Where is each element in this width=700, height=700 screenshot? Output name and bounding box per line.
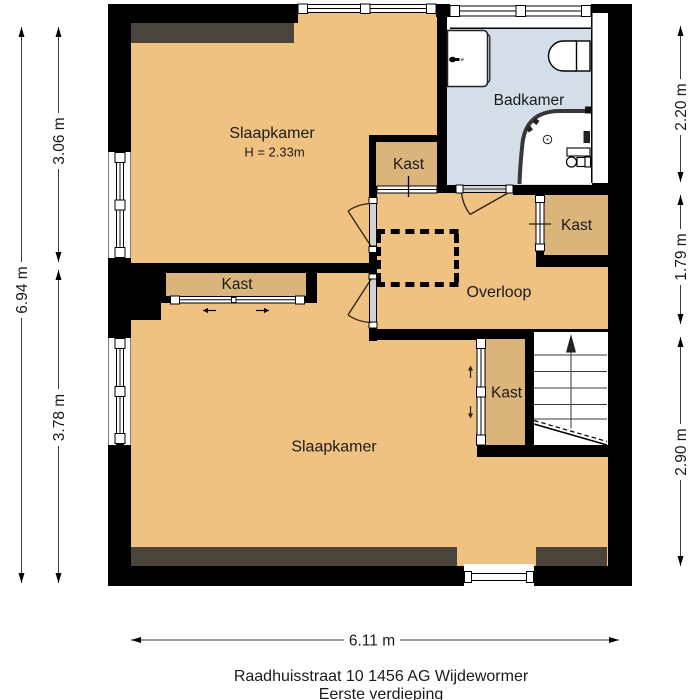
svg-text:6.94 m: 6.94 m xyxy=(14,266,31,313)
svg-text:Kast: Kast xyxy=(393,156,425,173)
svg-text:6.11 m: 6.11 m xyxy=(349,633,395,650)
svg-text:Kast: Kast xyxy=(561,217,593,234)
svg-text:3.06 m: 3.06 m xyxy=(51,117,68,164)
svg-text:Raadhuisstraat 10 1456 AG Wijd: Raadhuisstraat 10 1456 AG Wijdewormer xyxy=(234,668,529,685)
svg-text:1.79 m: 1.79 m xyxy=(673,233,690,280)
svg-text:2.90 m: 2.90 m xyxy=(673,428,690,475)
svg-text:2.20 m: 2.20 m xyxy=(673,83,690,130)
svg-text:Overloop: Overloop xyxy=(467,284,532,301)
svg-text:Slaapkamer: Slaapkamer xyxy=(291,439,377,456)
svg-text:Slaapkamer: Slaapkamer xyxy=(229,125,315,142)
svg-text:Kast: Kast xyxy=(221,276,253,293)
svg-text:Badkamer: Badkamer xyxy=(494,92,565,109)
svg-text:Kast: Kast xyxy=(491,385,523,402)
svg-text:3.78 m: 3.78 m xyxy=(51,394,68,441)
svg-text:Eerste verdieping: Eerste verdieping xyxy=(319,686,444,700)
svg-text:H = 2.33m: H = 2.33m xyxy=(244,145,304,160)
